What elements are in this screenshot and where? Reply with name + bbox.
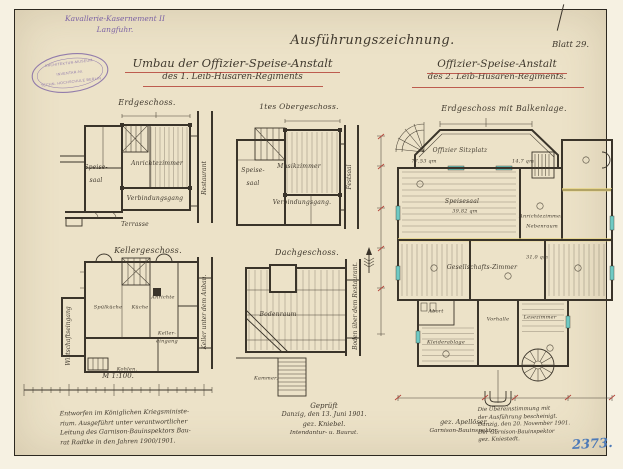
subtitle-right-line-1: Offizier-Speise-Anstalt	[392, 58, 602, 70]
room-label-wirtschaftseingang: Wirtschaftseingang	[66, 306, 72, 365]
room-label-speisesaal-1: Speise-	[84, 165, 107, 171]
drawing-sheet: Kavallerie-Kasernement II Langfuhr. ARCH…	[0, 0, 623, 469]
plan-title-obergeschoss: 1tes Obergeschoss.	[259, 102, 339, 111]
area-label-sitzplatz: 77,53 qm	[411, 160, 436, 165]
room-label-kleiderablage: Kleiderablage	[427, 341, 465, 346]
scale-bar-ruler	[22, 383, 214, 397]
plan-title-kellergeschoss: Kellergeschoss.	[114, 246, 182, 255]
kellergeschoss-linework	[58, 258, 238, 380]
room-label-speisesaal: Speisesaal	[445, 199, 479, 205]
subtitle-left-line-2: des 1. Leib-Husaren-Regiments	[95, 72, 370, 82]
room-label-musikzimmer: Musikzimmer	[277, 164, 321, 170]
room-label-lesezimmer: Lesezimmer	[524, 316, 557, 321]
design-note: Entworfen im Königlichen Kriegsministe- …	[60, 407, 226, 448]
subtitle-right: Offizier-Speise-Anstalt des 2. Leib-Husa…	[392, 58, 602, 82]
scale-label: M 1:100.	[102, 372, 134, 380]
area-label-anrichte: 14,7 qm	[512, 160, 534, 165]
plan-dachgeschoss: Dachgeschoss. Bodenraum Kammer. Boden üb…	[236, 246, 378, 396]
main-title: Ausführungszeichnung.	[280, 33, 465, 48]
plan-hauptgrundriss: Erdgeschoss mit Balkenlage.	[390, 100, 618, 406]
subtitle-left-line-1: Umbau der Offizier-Speise-Anstalt	[95, 56, 370, 70]
site-line-2: Langfuhr.	[40, 24, 190, 35]
approval-place-date: Danzig, den 13. Juni 1901.	[278, 411, 370, 418]
area-label-gesellschaft: 31,0 qm	[526, 256, 548, 261]
archive-number: 2373.	[572, 436, 613, 453]
red-underline	[412, 87, 584, 88]
room-label-festsaal: Festsaal	[347, 164, 353, 189]
room-label-gesellschaftszimmer: Gesellschafts-Zimmer	[447, 265, 517, 271]
room-label-kammer: Kammer.	[254, 377, 278, 382]
room-label-bodenraum: Bodenraum	[259, 312, 296, 318]
plan-title-hauptgrundriss: Erdgeschoss mit Balkenlage.	[441, 104, 567, 113]
approval-checked: Geprüft	[278, 402, 370, 410]
room-label-kueche: Küche	[132, 306, 149, 311]
room-label-abort: Abort	[428, 310, 443, 315]
room-label-vorhalle: Vorhalle	[487, 318, 510, 323]
signature-left: gez. Kniebel.	[278, 420, 370, 428]
red-underline	[125, 72, 340, 73]
plan-erdgeschoss: Erdgeschoss. Speise- saal Anrichtezimm	[58, 96, 236, 244]
red-underline	[427, 73, 567, 74]
room-label-speisesaal-2: saal	[247, 181, 260, 187]
north-arrow-icon	[362, 247, 376, 275]
dimension-chain	[376, 136, 386, 336]
room-label-speisesaal-1: Speise-	[241, 168, 264, 174]
room-label-verbindungsgang: Verbindungsgang.	[273, 200, 332, 206]
room-label-keller-anbau: Keller unter dem Anbau.	[202, 275, 208, 350]
area-label-speisesaal: 39,82 qm	[452, 210, 477, 215]
room-label-kellereingang-1: Keller-	[158, 332, 176, 337]
site-line-1: Kavallerie-Kasernement II	[40, 13, 190, 24]
subtitle-left: Umbau der Offizier-Speise-Anstalt des 1.…	[95, 56, 370, 82]
plan-title-dachgeschoss: Dachgeschoss.	[275, 248, 339, 257]
room-label-kellereingang-2: eingang	[156, 340, 178, 345]
room-label-nebenraum: Nebenraum	[526, 225, 558, 230]
room-label-anrichtezimmer: Anrichtezimmer	[131, 161, 183, 167]
room-label-terrasse: Terrasse	[121, 222, 149, 228]
red-underline	[143, 86, 323, 87]
role-left: Intendantur- u. Baurat.	[278, 430, 370, 436]
plan-kellergeschoss: Kellergeschoss. Spülküche Küche Anrichte…	[58, 246, 238, 382]
room-label-anrichte: Anrichte	[151, 296, 174, 301]
plan-obergeschoss: 1tes Obergeschoss. Speise- saal Musikzim…	[226, 100, 372, 242]
room-label-verbindungsgang: Verbindungsgang	[127, 196, 183, 202]
room-label-spuelkueche: Spülküche	[94, 306, 122, 311]
room-label-restaurant: Restaurant	[202, 161, 208, 195]
sheet-number: Blatt 29.	[552, 40, 589, 50]
scale-bar: M 1:100.	[22, 372, 214, 398]
room-label-anrichtezimmer: Anrichtezimmer	[519, 215, 563, 220]
approval-block-left: Geprüft Danzig, den 13. Juni 1901. gez. …	[278, 402, 370, 436]
plan-title-erdgeschoss: Erdgeschoss.	[118, 98, 176, 107]
site-name: Kavallerie-Kasernement II Langfuhr.	[40, 13, 190, 35]
room-label-speisesaal-2: saal	[90, 178, 103, 184]
room-label-offizier-sitzplatz: Offizier Sitzplatz	[433, 148, 488, 154]
room-label-boden-restaurant: Boden über dem Restaurant.	[353, 262, 359, 350]
